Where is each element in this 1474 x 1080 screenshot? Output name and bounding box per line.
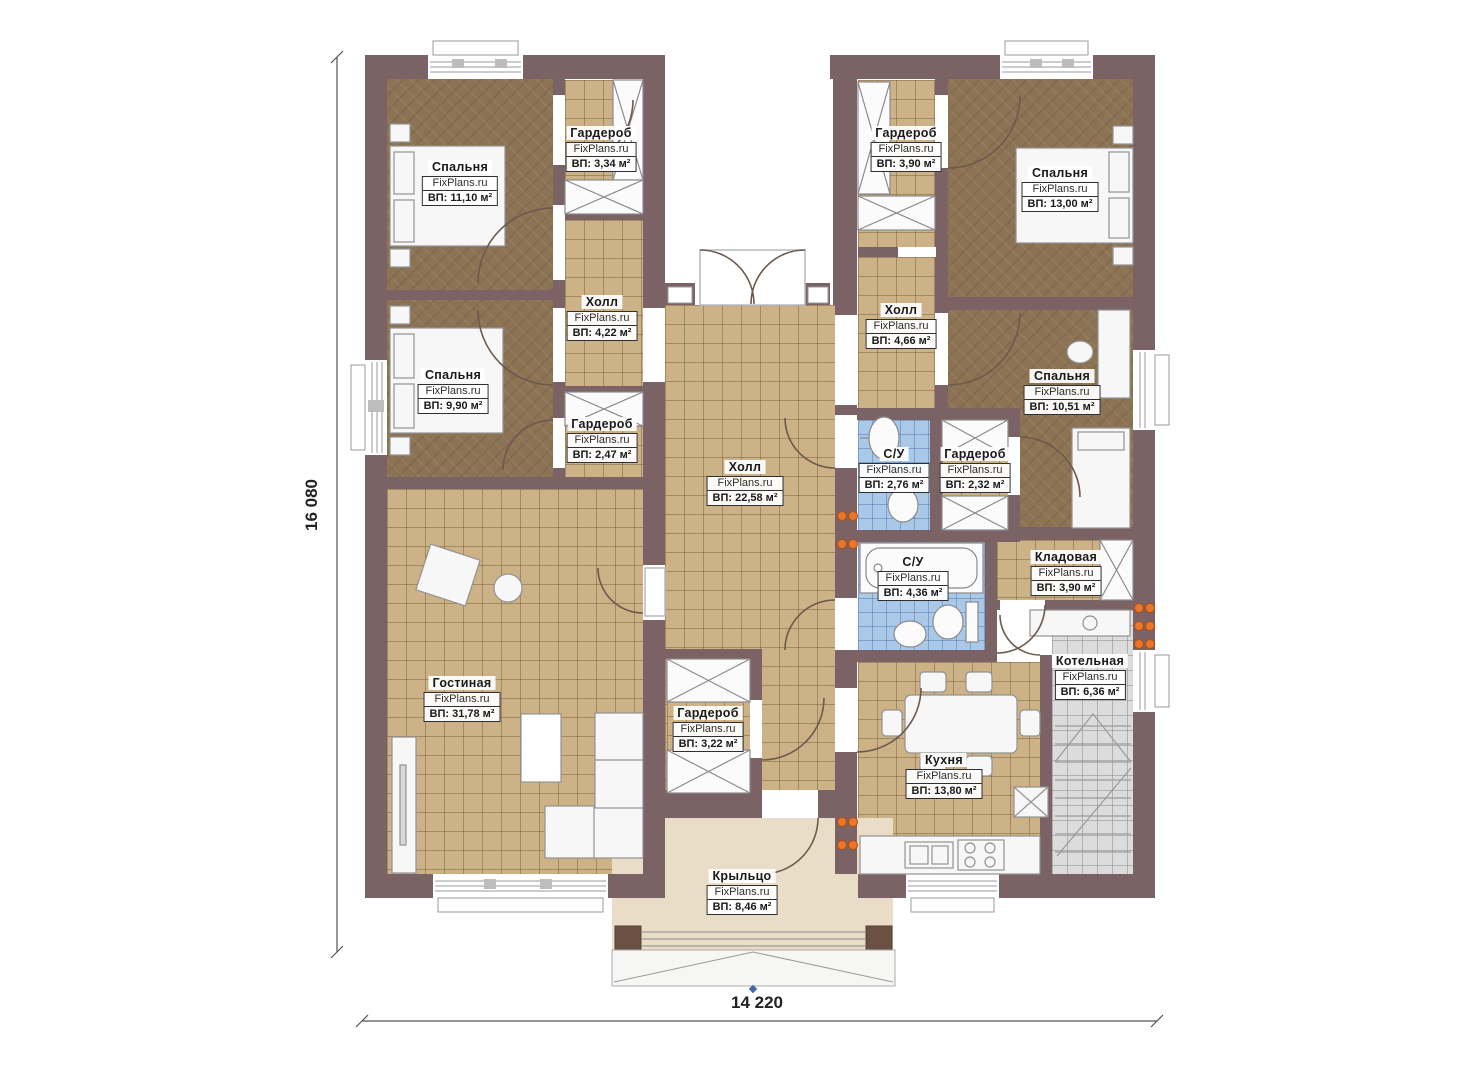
room-label-bedroom-4: Спальня FixPlans.ruВП: 10,51 м²	[1024, 369, 1101, 415]
brand: FixPlans.ru	[1023, 183, 1098, 197]
armchair	[416, 544, 480, 606]
bed	[1072, 428, 1130, 528]
dimension-height-label: 16 080	[302, 479, 322, 531]
brand: FixPlans.ru	[567, 143, 636, 157]
room-label-bedroom-1: Спальня FixPlans.ruВП: 11,10 м²	[422, 160, 498, 206]
brand: FixPlans.ru	[674, 723, 743, 737]
dimension-width-label: 14 220	[731, 993, 783, 1013]
closet	[858, 196, 935, 230]
floor-plan-graphics	[0, 0, 1474, 1080]
room-label-boiler-room: Котельная FixPlans.ruВП: 6,36 м²	[1052, 654, 1128, 700]
room-label-wardrobe-5: Гардероб FixPlans.ruВП: 2,32 м²	[940, 447, 1011, 493]
brand: FixPlans.ru	[941, 464, 1010, 478]
brand: FixPlans.ru	[1032, 567, 1101, 581]
room-label-bathroom-2: С/У FixPlans.ruВП: 4,36 м²	[878, 555, 949, 601]
room-label-wardrobe-1: Гардероб FixPlans.ruВП: 3,34 м²	[566, 126, 637, 172]
brand: FixPlans.ru	[568, 434, 637, 448]
sink	[894, 621, 926, 647]
brand: FixPlans.ru	[568, 312, 637, 326]
floor-plan-page: Спальня FixPlans.ruВП: 11,10 м² Гардероб…	[0, 0, 1474, 1080]
room-label-kitchen: Кухня FixPlans.ruВП: 13,80 м²	[906, 753, 983, 799]
brand: FixPlans.ru	[708, 477, 783, 491]
side-table	[494, 574, 522, 602]
closet	[667, 659, 750, 702]
room-label-hall-2: Холл FixPlans.ruВП: 4,66 м²	[866, 303, 937, 349]
brand: FixPlans.ru	[708, 886, 777, 900]
brand: FixPlans.ru	[860, 464, 929, 478]
brand: FixPlans.ru	[425, 693, 500, 707]
room-label-wardrobe-2: Гардероб FixPlans.ruВП: 2,47 м²	[567, 417, 638, 463]
closet	[667, 750, 750, 793]
toilet	[933, 602, 978, 642]
room-label-central-hall: Холл FixPlans.ruВП: 22,58 м²	[707, 460, 784, 506]
room-label-wardrobe-4: Гардероб FixPlans.ruВП: 3,90 м²	[871, 126, 942, 172]
brand: FixPlans.ru	[419, 385, 488, 399]
closet	[565, 180, 643, 214]
brand: FixPlans.ru	[867, 320, 936, 334]
stairs	[1055, 714, 1131, 856]
porch-steps	[612, 926, 895, 993]
room-label-bathroom-1: С/У FixPlans.ruВП: 2,76 м²	[859, 447, 930, 493]
brand: FixPlans.ru	[1025, 386, 1100, 400]
room-label-wardrobe-3: Гардероб FixPlans.ruВП: 3,22 м²	[673, 706, 744, 752]
room-label-living-room: Гостиная FixPlans.ruВП: 31,78 м²	[424, 676, 501, 722]
room-label-storage: Кладовая FixPlans.ruВП: 3,90 м²	[1031, 550, 1102, 596]
kitchen-counter	[860, 787, 1048, 874]
closet	[1100, 540, 1133, 600]
room-label-bedroom-2: Спальня FixPlans.ruВП: 9,90 м²	[418, 368, 489, 414]
room-label-bedroom-3: Спальня FixPlans.ruВП: 13,00 м²	[1022, 166, 1099, 212]
room-label-hall-1: Холл FixPlans.ruВП: 4,22 м²	[567, 295, 638, 341]
brand: FixPlans.ru	[423, 177, 497, 191]
closet	[942, 496, 1008, 530]
rug	[521, 714, 561, 782]
brand: FixPlans.ru	[1056, 671, 1125, 685]
tv-stand	[392, 737, 416, 873]
brand: FixPlans.ru	[879, 572, 948, 586]
room-label-porch: Крыльцо FixPlans.ruВП: 8,46 м²	[707, 869, 778, 915]
brand: FixPlans.ru	[907, 770, 982, 784]
brand: FixPlans.ru	[872, 143, 941, 157]
